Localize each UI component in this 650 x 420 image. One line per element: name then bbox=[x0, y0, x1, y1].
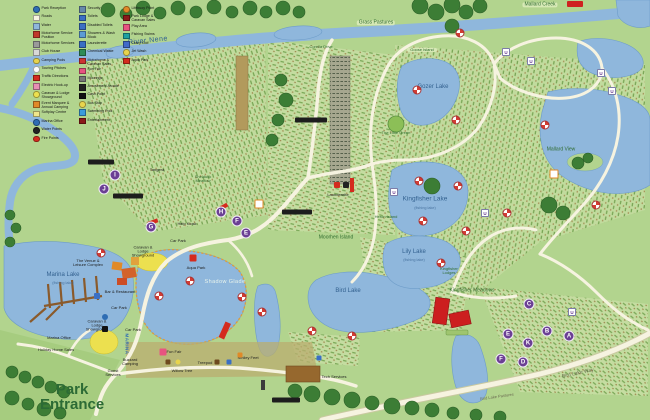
showground-icon bbox=[33, 91, 40, 98]
marker-b: B bbox=[542, 326, 553, 337]
marina-office-icon bbox=[33, 119, 40, 126]
lifebuoy-icon bbox=[413, 86, 422, 95]
legend-item: Launderette bbox=[79, 41, 119, 48]
label-car-park-2: Car Park bbox=[125, 328, 141, 332]
utility-point-icon: U bbox=[608, 87, 616, 95]
label-showground-north: Caravan & Lodge Showground bbox=[130, 246, 156, 259]
bus-stop-icon bbox=[79, 101, 86, 108]
legend-item-label: Park Lodge & Caravan Sales bbox=[132, 14, 162, 22]
fishing-icon bbox=[123, 33, 130, 40]
utility-point-icon: U bbox=[390, 188, 398, 196]
cash-point-icon bbox=[102, 326, 108, 332]
club-house-icon bbox=[33, 49, 40, 56]
label-marina: MARINA bbox=[124, 334, 129, 355]
play-area-icon bbox=[123, 24, 130, 31]
park-entrance-line1: Park bbox=[40, 382, 104, 397]
label-grass-pastures: Grass Pastures bbox=[357, 20, 395, 25]
legend-item: Chemical Waste bbox=[79, 49, 119, 56]
legend-item-label: Cash Point bbox=[88, 92, 106, 96]
legend-item-label: Club House bbox=[42, 49, 61, 53]
label-car-park-central: Car Park bbox=[170, 239, 186, 243]
moorings-icon bbox=[79, 76, 86, 83]
label-marina-office: Marina Office bbox=[47, 336, 71, 340]
label-bird-lake: Bird Lake bbox=[335, 288, 360, 294]
legend-item-label: Aqua Park bbox=[132, 58, 149, 62]
label-bar-restaurant: Bar & Restaurant bbox=[105, 290, 136, 294]
label-kingfisher-lodges: Kingfisher Lodges bbox=[436, 267, 462, 275]
toilets-icon bbox=[317, 356, 322, 361]
aqua-park-icon bbox=[123, 58, 130, 65]
marker-c: C bbox=[524, 299, 535, 310]
legend-item-label: Water bbox=[42, 23, 51, 27]
marker-h: H bbox=[216, 207, 227, 218]
lifebuoy-icon bbox=[541, 121, 550, 130]
legend-item: Amusement Arcade bbox=[79, 84, 119, 91]
legend-item-label: Toilets bbox=[88, 14, 98, 18]
arcade-icon bbox=[343, 182, 349, 188]
cash-point-icon bbox=[79, 93, 86, 100]
events-icon bbox=[550, 170, 559, 179]
label-treepod: Treepod bbox=[198, 361, 213, 365]
lodge-sales-icon bbox=[123, 15, 130, 22]
legend-item: Event Marquee & Annual Camping bbox=[33, 101, 75, 109]
lifebuoy-icon bbox=[415, 177, 424, 186]
legend-item: Jet Wash bbox=[123, 49, 161, 56]
legend-item: Caravan & Lodge Showground bbox=[33, 91, 75, 99]
marker-d: D bbox=[518, 357, 529, 368]
park-map: Park Reception Roads Water Motorhome Ser… bbox=[0, 0, 650, 420]
crazy-golf-icon bbox=[123, 41, 130, 48]
aqua-park-icon bbox=[190, 255, 197, 262]
legend-item: Fire Points bbox=[33, 136, 75, 143]
label-mallard-creek: Mallard Creek bbox=[522, 2, 557, 7]
water-point-icon bbox=[33, 127, 40, 134]
legend-item: Touring Pitches bbox=[33, 66, 75, 73]
lifebuoy-icon bbox=[155, 292, 164, 301]
arcade-icon bbox=[79, 84, 86, 91]
chemical-waste-icon bbox=[79, 49, 86, 56]
lifebuoy-icon bbox=[238, 293, 247, 302]
marker-a: A bbox=[564, 331, 575, 342]
legend-item-label: Motorhome Service Position bbox=[42, 31, 76, 39]
legend-item-label: Chemical Waste bbox=[88, 49, 114, 53]
legend-item-label: Motorhome & Caravan Sales bbox=[88, 58, 120, 66]
roads-icon bbox=[33, 15, 40, 22]
lifebuoy-icon bbox=[308, 327, 317, 336]
motorhome-sales-icon bbox=[79, 58, 86, 65]
legend-item-label: Electric Hook-up bbox=[42, 83, 68, 87]
legend-item: Disabled Toilets bbox=[79, 23, 119, 30]
jet-wash-icon bbox=[123, 49, 130, 56]
label-tech-services: Tech Services bbox=[321, 375, 347, 379]
road-name-sign bbox=[113, 194, 143, 199]
legend-item: Marina Office bbox=[33, 119, 75, 126]
label-tangera: Tangera bbox=[150, 168, 164, 172]
marker-f2: F bbox=[232, 216, 243, 227]
traffic-direction-icon bbox=[33, 75, 40, 82]
legend-item: Motorhome & Caravan Sales bbox=[79, 58, 119, 66]
label-mallard-view: Mallard View bbox=[547, 147, 576, 152]
label-heron-island: Heron Island bbox=[375, 215, 398, 219]
lifebuoy-icon bbox=[419, 217, 428, 226]
utility-point-icon: U bbox=[527, 57, 535, 65]
lifebuoy-icon bbox=[452, 116, 461, 125]
softplay-icon bbox=[33, 111, 40, 118]
legend-item: Roads bbox=[33, 14, 75, 21]
legend-item-label: Marina Office bbox=[42, 119, 63, 123]
kiosk-icon bbox=[215, 360, 220, 365]
fun-fair-icon bbox=[160, 349, 167, 356]
legend-item-label: Touring Pitches bbox=[42, 66, 67, 70]
legend-item-label: Roads bbox=[42, 14, 52, 18]
utility-point-icon: U bbox=[568, 308, 576, 316]
legend-item-label: Swimming Pool bbox=[88, 109, 113, 113]
label-fun-fair: Fun Fair bbox=[167, 350, 182, 354]
road-name-sign bbox=[282, 210, 312, 215]
legend-item-label: Park Reception bbox=[42, 6, 67, 10]
legend-item: Fun Fair bbox=[79, 67, 119, 74]
label-holiday-home-sales: Holiday Home Sales bbox=[38, 348, 74, 352]
label-corella-drive: Corella Drive bbox=[308, 45, 334, 49]
road-name-sign bbox=[88, 160, 114, 165]
legend-item: Swimming Pool bbox=[79, 109, 119, 116]
camping-pods-icon bbox=[33, 58, 40, 65]
label-marina-lake-sub: (fishing lake) bbox=[52, 281, 74, 285]
label-guest-services: Guest Services bbox=[100, 369, 126, 377]
legend-item-label: Security bbox=[88, 6, 101, 10]
label-car-park-1: Car Park bbox=[111, 306, 127, 310]
toilets-icon bbox=[227, 360, 232, 365]
entertainment-icon bbox=[79, 118, 86, 125]
park-entrance-line2: Entrance bbox=[40, 397, 104, 412]
label-aqua-park: Aqua Park bbox=[187, 266, 206, 270]
legend-item: Showers & Wash Block bbox=[79, 31, 119, 39]
toilets-icon bbox=[94, 293, 100, 299]
launderette-icon bbox=[79, 41, 86, 48]
legend-item-label: Event Marquee & Annual Camping bbox=[42, 101, 76, 109]
lifebuoy-icon bbox=[437, 259, 446, 268]
marker-k: K bbox=[523, 338, 534, 349]
reception-icon bbox=[33, 6, 40, 13]
swimming-pool-icon bbox=[79, 109, 86, 116]
legend-item: Park Lodge & Caravan Sales bbox=[123, 14, 161, 22]
label-lily-lake: Lily Lake bbox=[402, 249, 426, 255]
motorhome-services-icon bbox=[33, 41, 40, 48]
legend-item: Crazy Golf bbox=[123, 41, 161, 48]
legend-item: Play Area bbox=[123, 24, 161, 31]
lifebuoy-icon bbox=[462, 227, 471, 236]
legend-item-label: Amusement Arcade bbox=[88, 84, 119, 88]
showers-icon bbox=[79, 31, 86, 38]
label-kingfisher-lake: Kingfisher Lake bbox=[403, 197, 448, 204]
legend-item-label: Entertainment bbox=[88, 118, 110, 122]
lifebuoy-icon bbox=[454, 182, 463, 191]
legend-column-2: Security Toilets Disabled Toilets Shower… bbox=[79, 6, 119, 142]
legend-item-label: Showers & Wash Block bbox=[88, 31, 120, 39]
marker-e2: E bbox=[241, 228, 252, 239]
map-legend: Park Reception Roads Water Motorhome Ser… bbox=[33, 6, 161, 142]
lifebuoy-icon bbox=[123, 6, 130, 13]
legend-item: Cash Point bbox=[79, 92, 119, 99]
legend-item-label: Bus Stop bbox=[88, 101, 103, 105]
disabled-toilets-icon bbox=[79, 23, 86, 30]
marker-g: G bbox=[146, 222, 157, 233]
lifebuoy-icon bbox=[97, 249, 106, 258]
label-gozer-lake: Gozer Lake bbox=[417, 84, 448, 90]
legend-item: Motorhome Service Position bbox=[33, 31, 75, 39]
lifebuoy-icon bbox=[503, 209, 512, 218]
label-shadow-glade: Shadow Glade bbox=[205, 280, 246, 286]
utility-point-icon: U bbox=[481, 209, 489, 217]
legend-item: Softplay Centre bbox=[33, 110, 75, 117]
marker-e: E bbox=[503, 329, 514, 340]
marker-i: I bbox=[110, 170, 121, 181]
legend-item: Toilets bbox=[79, 14, 119, 21]
jet-wash-icon bbox=[176, 360, 181, 365]
legend-item: Lifebuoy Point bbox=[123, 6, 161, 13]
legend-item: Security bbox=[79, 6, 119, 13]
legend-item-label: Disabled Toilets bbox=[88, 23, 113, 27]
label-help-kiosk: Help Kiosk bbox=[174, 222, 200, 226]
marker-j: J bbox=[99, 184, 110, 195]
legend-item-label: Crazy Golf bbox=[132, 41, 149, 45]
legend-column-3: Lifebuoy Point Park Lodge & Caravan Sale… bbox=[123, 6, 161, 142]
fun-fair-icon bbox=[79, 68, 86, 75]
toilets-icon bbox=[79, 15, 86, 22]
legend-item-label: Jet Wash bbox=[132, 49, 147, 53]
legend-item-label: Motorhome Services bbox=[42, 41, 75, 45]
legend-item-label: Fishing Swims bbox=[132, 32, 155, 36]
water-icon bbox=[33, 23, 40, 30]
label-shelduck-meadow: Shelduck Meadow bbox=[190, 175, 216, 183]
legend-item-label: Lifebuoy Point bbox=[132, 6, 155, 10]
legend-item-label: Moorings bbox=[88, 76, 103, 80]
label-little-green: The Little Green bbox=[382, 131, 411, 135]
legend-item: Water bbox=[33, 23, 75, 30]
reception-icon bbox=[102, 314, 108, 320]
road-name-sign bbox=[295, 118, 327, 123]
lifebuoy-icon bbox=[456, 29, 465, 38]
label-goose-island: Goose Island bbox=[407, 48, 437, 52]
lifebuoy-icon bbox=[592, 201, 601, 210]
legend-item-label: Play Area bbox=[132, 24, 147, 28]
legend-item: Fishing Swims bbox=[123, 32, 161, 39]
legend-item: Water Points bbox=[33, 127, 75, 134]
legend-item-label: Softplay Centre bbox=[42, 110, 67, 114]
warning-sign bbox=[567, 1, 583, 7]
legend-item: Park Reception bbox=[33, 6, 75, 13]
kiosk-icon bbox=[166, 360, 171, 365]
legend-item: Camping Pods bbox=[33, 58, 75, 65]
lifebuoy-icon bbox=[258, 308, 267, 317]
events-icon bbox=[33, 101, 40, 108]
utility-point-icon: U bbox=[502, 48, 510, 56]
legend-item-label: Fun Fair bbox=[88, 67, 101, 71]
marker-f: F bbox=[496, 354, 507, 365]
events-icon bbox=[255, 200, 264, 209]
play-area-icon bbox=[238, 353, 243, 358]
lifebuoy-icon bbox=[186, 277, 195, 286]
hookup-icon bbox=[33, 83, 40, 90]
fire-point-icon bbox=[33, 136, 40, 143]
label-launderette: Launderette bbox=[327, 193, 348, 197]
legend-item: Electric Hook-up bbox=[33, 83, 75, 90]
legend-item: Motorhome Services bbox=[33, 41, 75, 48]
label-marina-lake: Marina Lake bbox=[46, 272, 79, 278]
utility-point-icon: U bbox=[597, 69, 605, 77]
service-icon bbox=[334, 182, 340, 188]
legend-item: Aqua Park bbox=[123, 58, 161, 65]
touring-pitches-icon bbox=[33, 66, 40, 73]
legend-item: Bus Stop bbox=[79, 101, 119, 108]
label-buzzard-camping: Buzzard Camping bbox=[117, 358, 143, 366]
label-moorhen-island: Moorhen Island bbox=[319, 235, 353, 240]
legend-item-label: Fire Points bbox=[42, 136, 59, 140]
legend-item-label: Traffic Directions bbox=[42, 74, 69, 78]
legend-item-label: Camping Pods bbox=[42, 58, 66, 62]
lifebuoy-icon bbox=[348, 332, 357, 341]
legend-item: Entertainment bbox=[79, 118, 119, 125]
label-park-entrance: Park Entrance bbox=[40, 382, 104, 412]
label-kingfisher-lake-sub: (fishing lake) bbox=[414, 206, 436, 210]
legend-item-label: Caravan & Lodge Showground bbox=[42, 91, 76, 99]
legend-item: Moorings bbox=[79, 76, 119, 83]
motorhome-service-icon bbox=[33, 31, 40, 38]
legend-item-label: Water Points bbox=[42, 127, 62, 131]
legend-column-1: Park Reception Roads Water Motorhome Ser… bbox=[33, 6, 75, 142]
road-name-sign bbox=[272, 398, 300, 403]
label-kingfisher-meadows: Kingfisher Meadows bbox=[449, 288, 494, 293]
security-icon bbox=[79, 6, 86, 13]
label-venue: The Venue & Leisure Complex bbox=[72, 259, 104, 267]
legend-item: Traffic Directions bbox=[33, 74, 75, 81]
label-willow-tree: Willow Tree bbox=[172, 369, 193, 373]
legend-item: Club House bbox=[33, 49, 75, 56]
label-lily-lake-sub: (fishing lake) bbox=[403, 258, 425, 262]
legend-item-label: Launderette bbox=[88, 41, 107, 45]
